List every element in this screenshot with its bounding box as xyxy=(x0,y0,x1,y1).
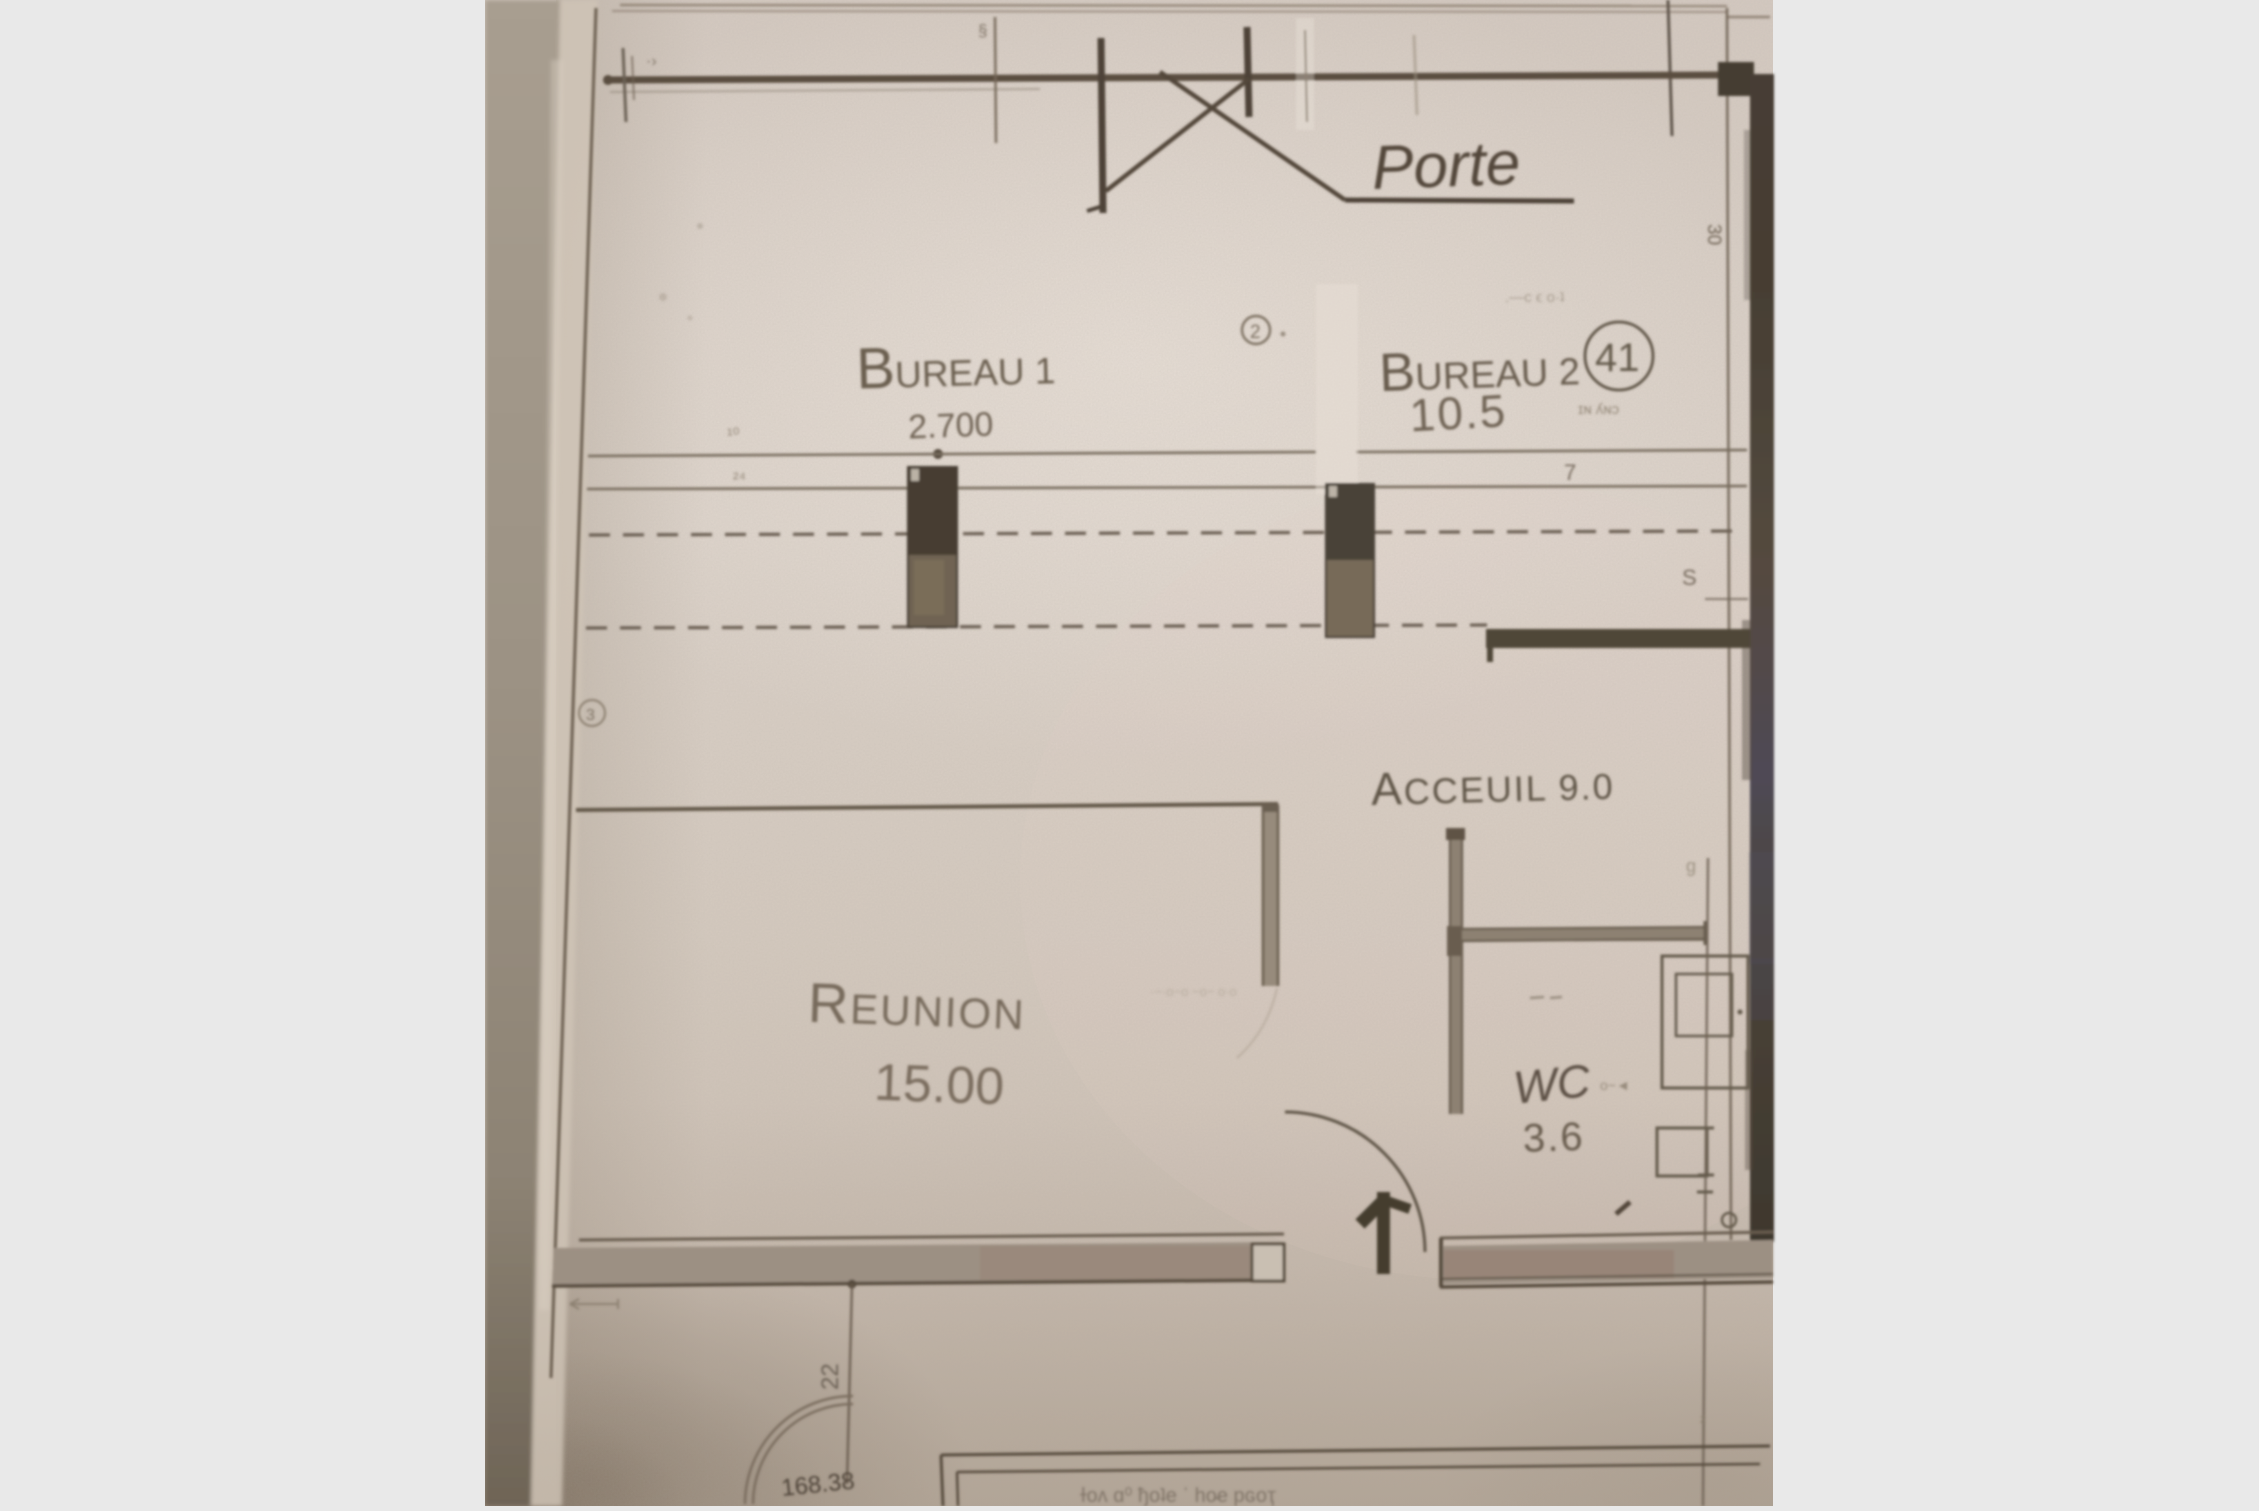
svg-text:²: ² xyxy=(1700,1412,1706,1432)
svg-text:3: 3 xyxy=(586,707,595,724)
svg-text:·−·о−о −о− о·о: ·−·о−о −о− о·о xyxy=(1150,984,1237,999)
svg-text:22: 22 xyxy=(817,1363,844,1390)
svg-text:10.5: 10.5 xyxy=(1408,384,1508,441)
svg-text:§: § xyxy=(978,21,987,40)
svg-text:3.6: 3.6 xyxy=(1522,1115,1585,1161)
svg-text:30: 30 xyxy=(1703,224,1724,245)
svg-text:7: 7 xyxy=(1564,460,1576,485)
svg-text:2.700: 2.700 xyxy=(908,406,994,447)
svg-text:ɫоʌ ɑ⁰ ђоʇе ˈ һо̴е рԍоҭ: ɫоʌ ɑ⁰ ђоʇе ˈ һо̴е рԍоҭ xyxy=(1080,1485,1276,1506)
svg-text:41: 41 xyxy=(1595,336,1640,380)
svg-text:2: 2 xyxy=(1250,322,1261,343)
svg-text:о−◄: о−◄ xyxy=(1600,1077,1630,1093)
svg-text:ɡ: ɡ xyxy=(1686,856,1696,876)
svg-text:·›: ·› xyxy=(646,53,657,70)
svg-text:²⁴: ²⁴ xyxy=(733,469,746,488)
svg-text:ɪɴ ʎɴɔ: ɪɴ ʎɴɔ xyxy=(1578,401,1619,418)
svg-text:.—ϲ ϵ о·ʇ: .—ϲ ϵ о·ʇ xyxy=(1505,289,1565,306)
svg-text:S: S xyxy=(1682,565,1697,590)
svg-text:Porte: Porte xyxy=(1371,129,1522,203)
svg-text:15.00: 15.00 xyxy=(873,1054,1005,1117)
svg-text:WC: WC xyxy=(1511,1054,1593,1114)
svg-text:¹⁰: ¹⁰ xyxy=(727,425,740,444)
